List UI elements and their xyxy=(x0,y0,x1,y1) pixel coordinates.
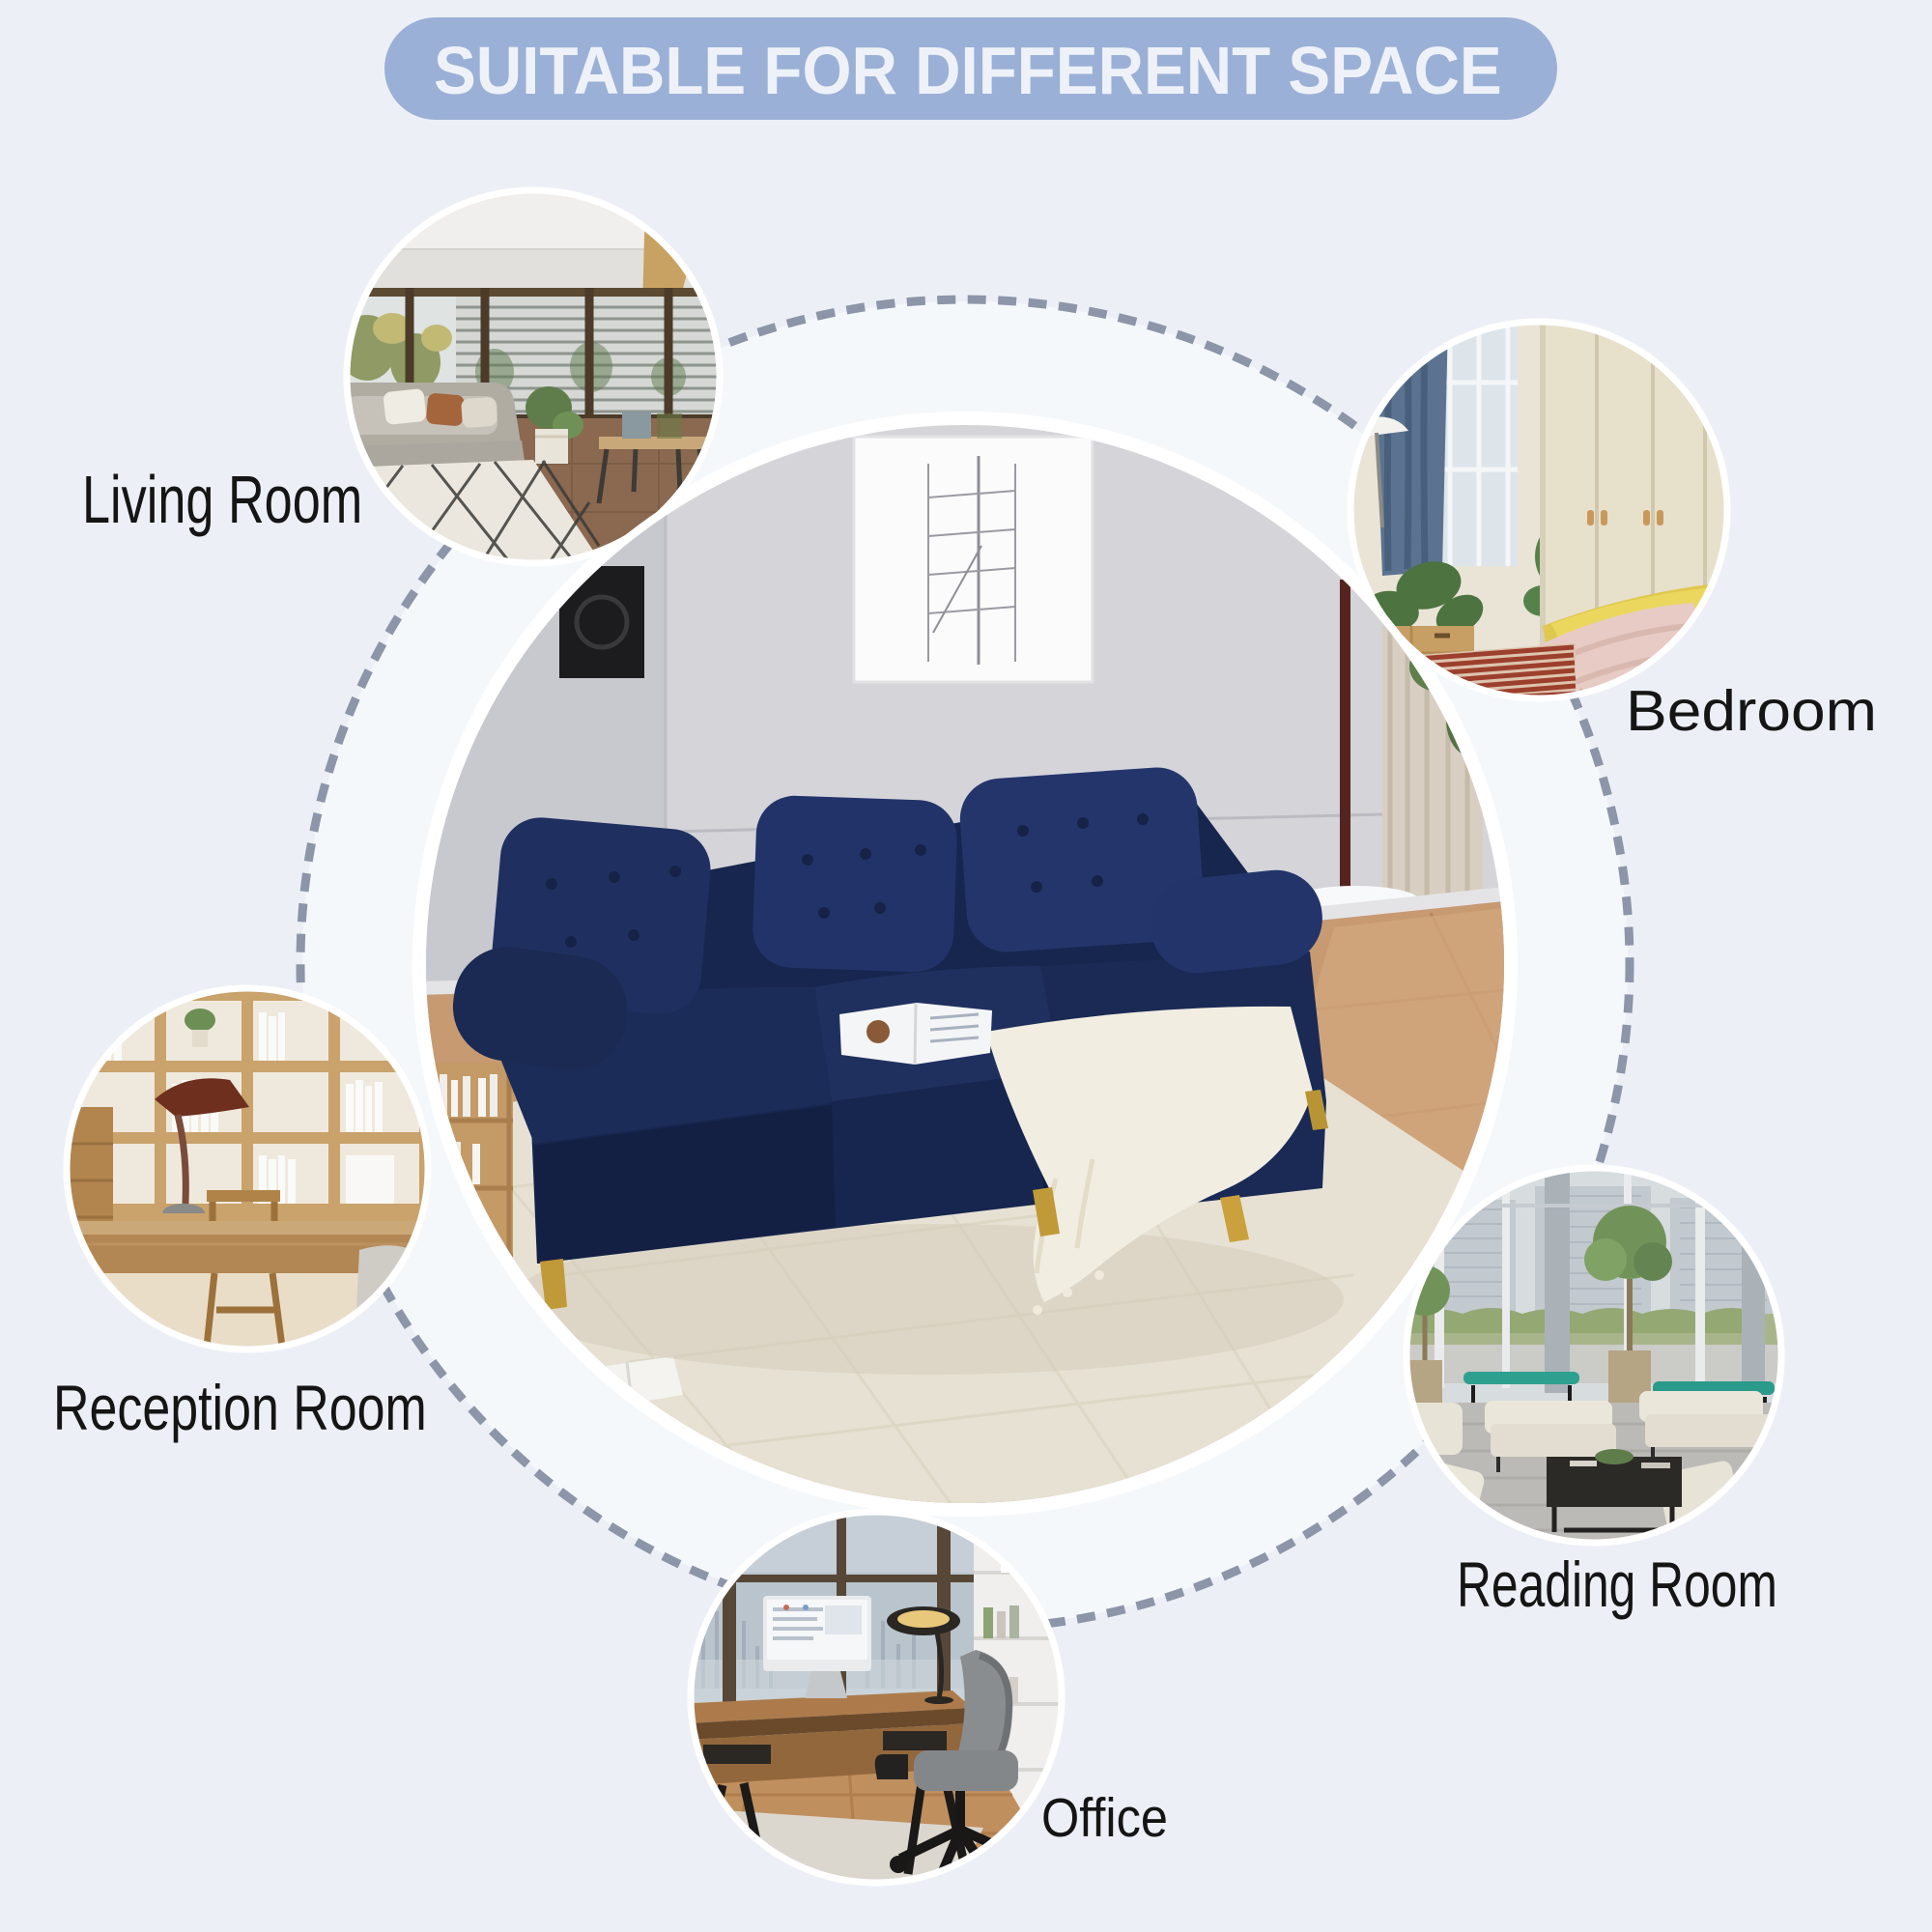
svg-text:Bedroom: Bedroom xyxy=(1626,679,1877,743)
svg-text:Living Room: Living Room xyxy=(82,463,362,538)
svg-text:Office: Office xyxy=(1041,1787,1168,1849)
svg-text:Reading Room: Reading Room xyxy=(1457,1549,1777,1620)
svg-text:Reception Room: Reception Room xyxy=(53,1372,427,1443)
svg-text:SUITABLE FOR DIFFERENT SPACE: SUITABLE FOR DIFFERENT SPACE xyxy=(434,34,1502,108)
